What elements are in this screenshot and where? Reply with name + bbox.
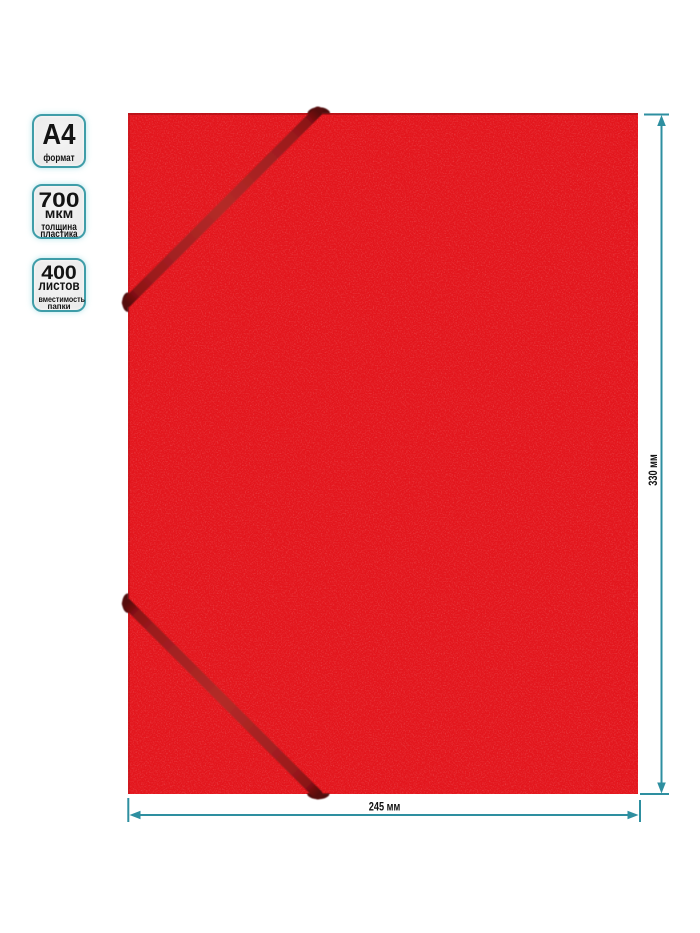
svg-text:330 мм: 330 мм: [646, 454, 660, 486]
svg-text:245 мм: 245 мм: [369, 800, 401, 814]
